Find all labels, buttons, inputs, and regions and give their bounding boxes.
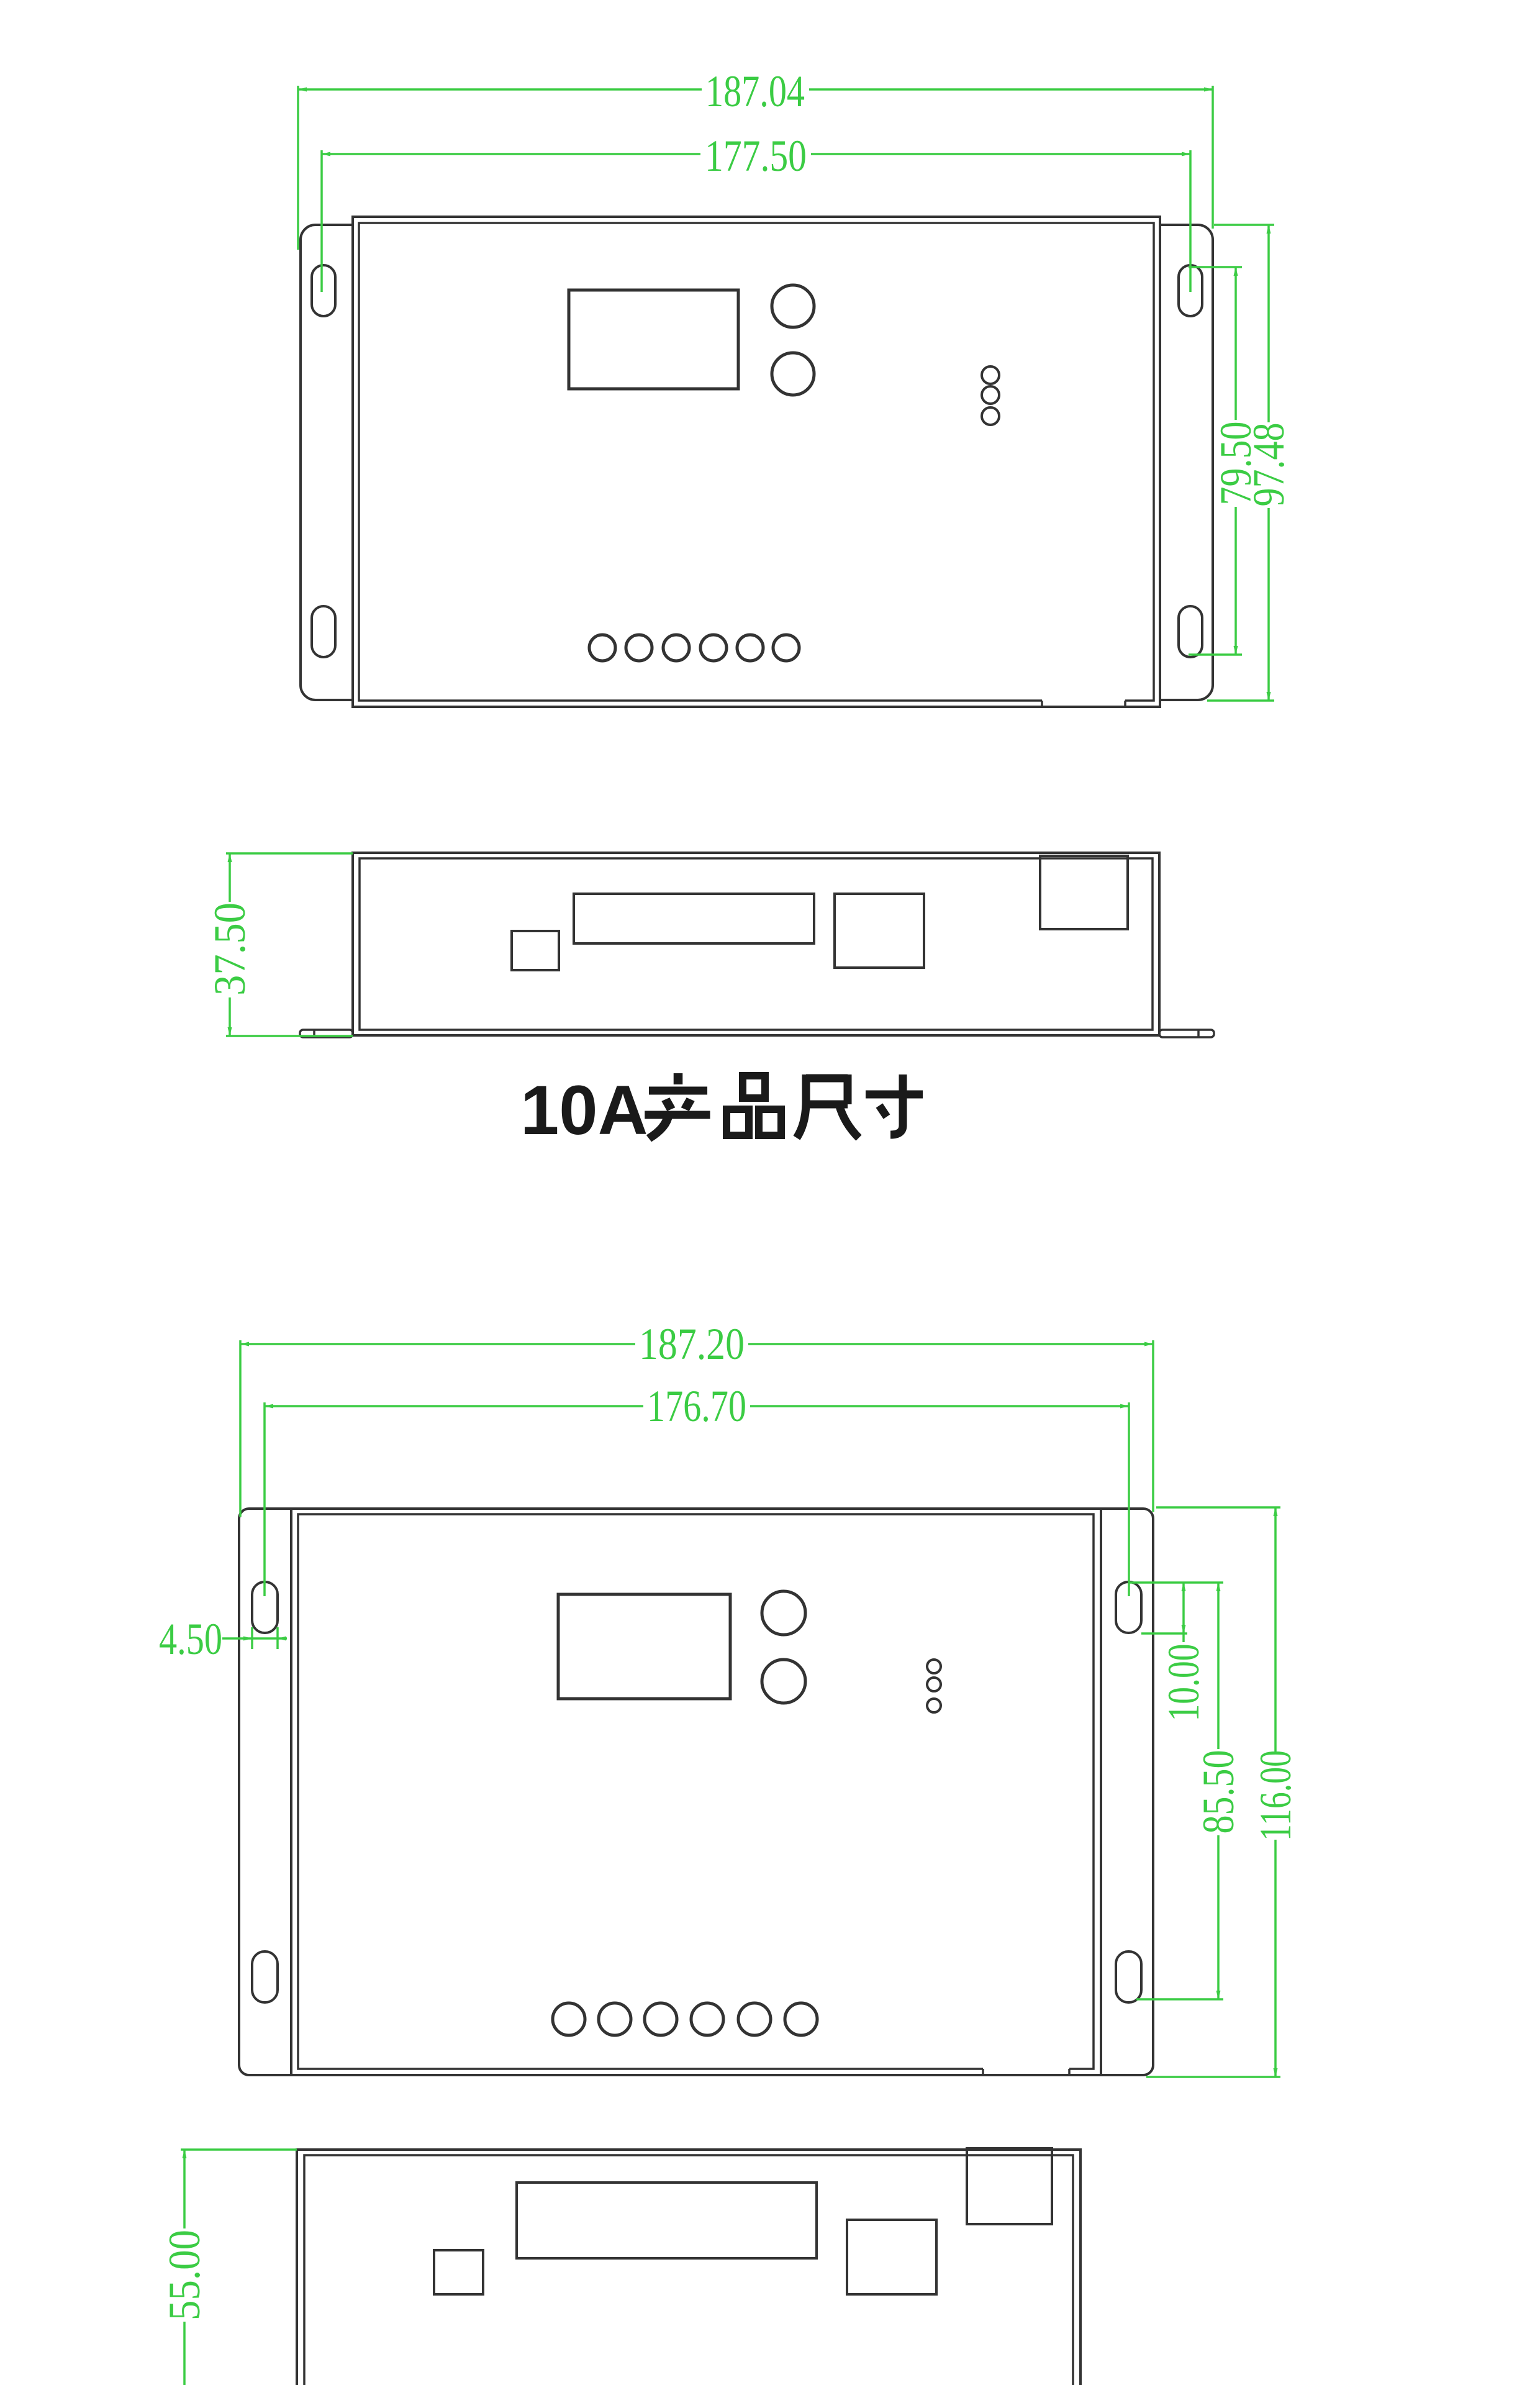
svg-text:176.70: 176.70 [647,1381,746,1431]
svg-text:85.50: 85.50 [1193,1750,1243,1834]
svg-text:177.50: 177.50 [705,131,807,181]
svg-text:187.20: 187.20 [639,1319,745,1369]
svg-text:187.04: 187.04 [705,66,805,116]
svg-text:4.50: 4.50 [159,1614,222,1664]
svg-text:37.50: 37.50 [205,902,255,996]
svg-text:10.00: 10.00 [1159,1644,1208,1722]
svg-text:55.00: 55.00 [160,2230,209,2320]
svg-text:10A: 10A [520,1071,648,1149]
svg-text:97.48: 97.48 [1244,423,1293,507]
svg-text:116.00: 116.00 [1251,1750,1300,1841]
